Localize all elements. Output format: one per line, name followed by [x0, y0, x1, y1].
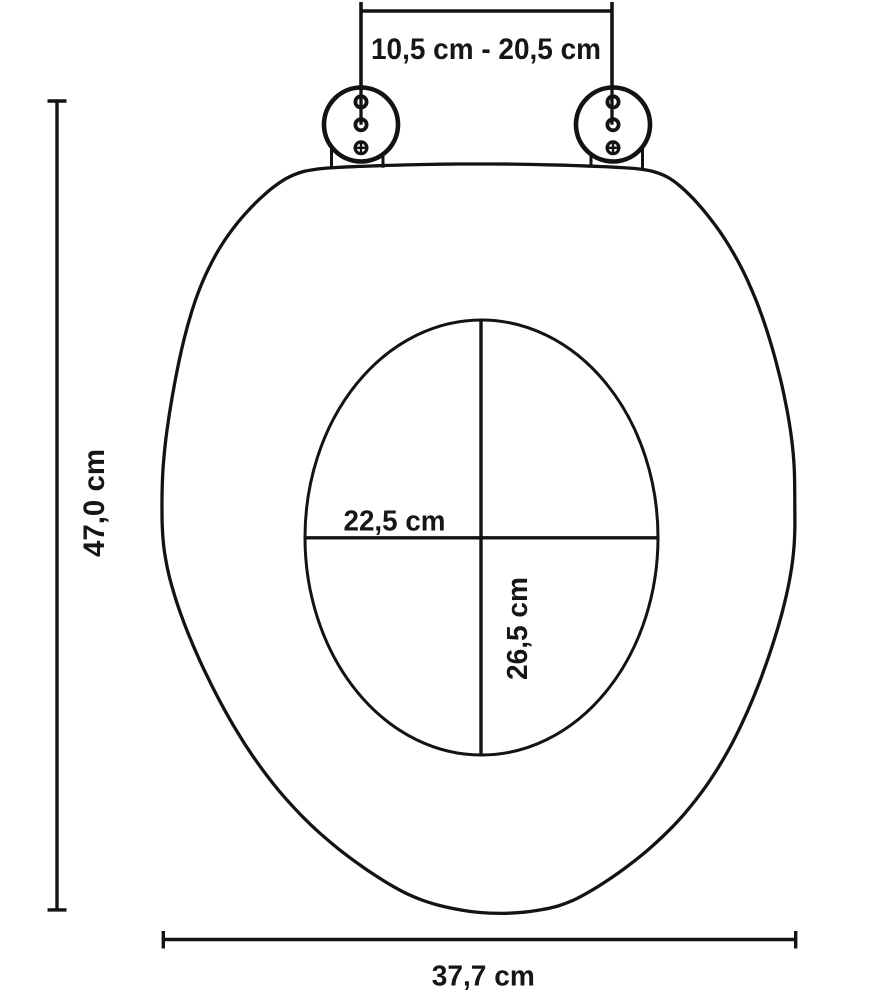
- svg-text:26,5 cm: 26,5 cm: [502, 577, 534, 680]
- svg-text:37,7 cm: 37,7 cm: [432, 961, 535, 993]
- svg-text:22,5 cm: 22,5 cm: [344, 506, 446, 538]
- svg-text:10,5 cm - 20,5 cm: 10,5 cm - 20,5 cm: [371, 33, 601, 66]
- svg-text:47,0 cm: 47,0 cm: [78, 449, 111, 557]
